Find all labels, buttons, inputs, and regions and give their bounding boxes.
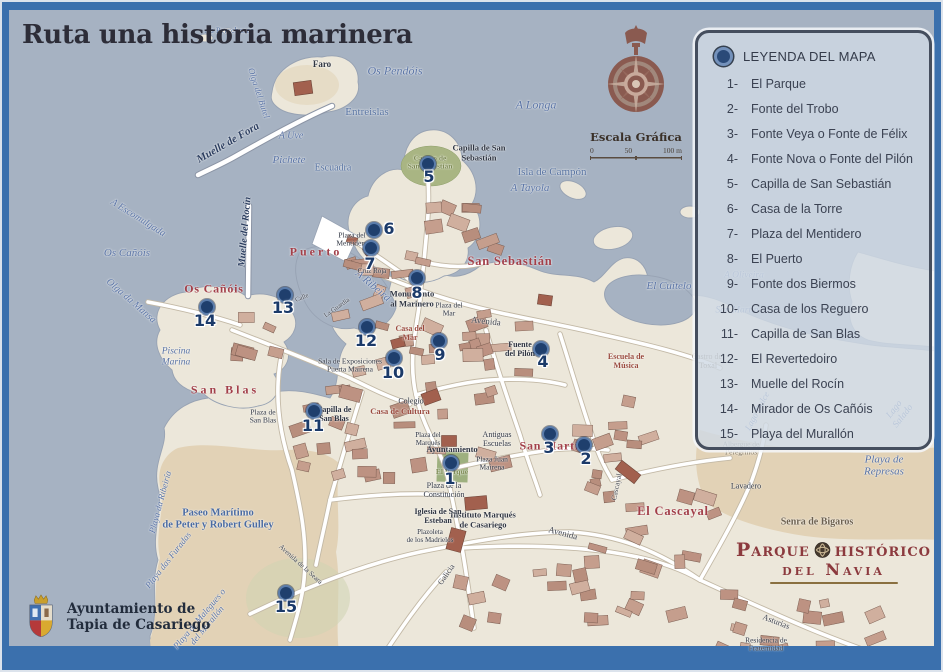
legend-item: 3- Fonte Veya o Fonte de Félix (698, 121, 929, 146)
logo-word-historico: histórico (835, 539, 931, 561)
map-marker[interactable] (277, 287, 293, 303)
legend-item-number: 14- (698, 402, 738, 416)
legend-item: 14- Mirador de Os Cañóis (698, 396, 929, 421)
legend-item-number: 5- (698, 177, 738, 191)
legend-item: 7- Plaza del Mentidero (698, 221, 929, 246)
scale-title: Escala Gráfica (588, 130, 684, 144)
legend-item-number: 9- (698, 277, 738, 291)
map-marker[interactable] (443, 455, 459, 471)
legend-item-label: El Revertedoiro (751, 352, 929, 366)
map-marker[interactable] (576, 437, 592, 453)
legend-item-number: 4- (698, 152, 738, 166)
legend-item-label: El Parque (751, 77, 929, 91)
parque-historico-logo: Parque histórico del Navia (736, 538, 931, 584)
legend-item-number: 7- (698, 227, 738, 241)
legend-item-number: 1- (698, 77, 738, 91)
legend-bullet-icon (714, 47, 733, 66)
legend-item-label: Mirador de Os Cañóis (751, 402, 929, 416)
map-marker[interactable] (363, 240, 379, 256)
legend-item-label: Casa de la Torre (751, 202, 929, 216)
logo-del-navia: del Navia (736, 560, 931, 579)
map-marker[interactable] (199, 299, 215, 315)
legend-item: 12- El Revertedoiro (698, 346, 929, 371)
park-green (246, 558, 350, 638)
map-marker[interactable] (306, 403, 322, 419)
scale-tick-100: 100 m (663, 146, 682, 155)
legend-item-number: 8- (698, 252, 738, 266)
legend-panel: LEYENDA DEL MAPA 1- El Parque 2- Fonte d… (695, 30, 932, 450)
logo-word-parque: Parque (736, 539, 810, 561)
legend-item-label: Casa de los Reguero (751, 302, 929, 316)
legend-item: 10- Casa de los Reguero (698, 296, 929, 321)
legend-item-label: Fonte dos Biermos (751, 277, 929, 291)
map-marker[interactable] (533, 341, 549, 357)
map-marker[interactable] (420, 156, 436, 172)
legend-item: 1- El Parque (698, 71, 929, 96)
map-marker[interactable] (431, 333, 447, 349)
legend-item: 4- Fonte Nova o Fonte del Pilón (698, 146, 929, 171)
legend-item-label: Playa del Murallón (751, 427, 929, 441)
legend-item-number: 11- (698, 327, 738, 341)
legend-item: 9- Fonte dos Biermos (698, 271, 929, 296)
legend-items: 1- El Parque 2- Fonte del Trobo 3- Fonte… (698, 71, 929, 446)
map-marker[interactable] (542, 426, 558, 442)
legend-item-label: El Puerto (751, 252, 929, 266)
legend-item: 5- Capilla de San Sebastián (698, 171, 929, 196)
logo-underline (770, 582, 898, 584)
legend-item-number: 12- (698, 352, 738, 366)
municipality-name: Ayuntamiento de Tapia de Casariego (67, 601, 210, 633)
compass-rose-icon (600, 24, 672, 128)
municipality-block: Ayuntamiento de Tapia de Casariego (24, 592, 210, 642)
map-marker[interactable] (278, 585, 294, 601)
legend-item-label: Capilla de San Blas (751, 327, 929, 341)
legend-item-label: Muelle del Rocín (751, 377, 929, 391)
map-poster: As PercebosasOs PendóisA LongaEntreislas… (0, 0, 943, 672)
legend-item: 8- El Puerto (698, 246, 929, 271)
municipality-line2: Tapia de Casariego (67, 617, 210, 633)
legend-item-label: Fonte del Trobo (751, 102, 929, 116)
legend-item-label: Capilla de San Sebastián (751, 177, 929, 191)
page-title: Ruta una historia marinera (22, 20, 413, 50)
legend-item-label: Plaza del Mentidero (751, 227, 929, 241)
legend-item: 13- Muelle del Rocín (698, 371, 929, 396)
scale-bar (590, 156, 682, 160)
legend-item: 15- Playa del Murallón (698, 421, 929, 446)
legend-item: 2- Fonte del Trobo (698, 96, 929, 121)
municipality-line1: Ayuntamiento de (67, 601, 210, 617)
legend-item-number: 3- (698, 127, 738, 141)
legend-item-label: Fonte Nova o Fonte del Pilón (751, 152, 929, 166)
scale-tick-0: 0 (590, 146, 594, 155)
map-marker[interactable] (359, 319, 375, 335)
scale-ticks: 0 50 100 m (588, 146, 684, 155)
legend-title: LEYENDA DEL MAPA (743, 49, 876, 64)
legend-item: 11- Capilla de San Blas (698, 321, 929, 346)
legend-item-label: Fonte Veya o Fonte de Félix (751, 127, 929, 141)
celtic-knot-icon (814, 538, 831, 562)
legend-item: 6- Casa de la Torre (698, 196, 929, 221)
map-marker[interactable] (409, 270, 425, 286)
legend-item-number: 2- (698, 102, 738, 116)
map-marker[interactable] (386, 350, 402, 366)
coat-of-arms-icon (24, 592, 58, 642)
scale-tick-50: 50 (625, 146, 633, 155)
map-marker[interactable] (366, 222, 382, 238)
legend-item-number: 15- (698, 427, 738, 441)
legend-item-number: 13- (698, 377, 738, 391)
legend-item-number: 10- (698, 302, 738, 316)
compass-scale-block: Escala Gráfica 0 50 100 m (588, 24, 684, 160)
legend-item-number: 6- (698, 202, 738, 216)
